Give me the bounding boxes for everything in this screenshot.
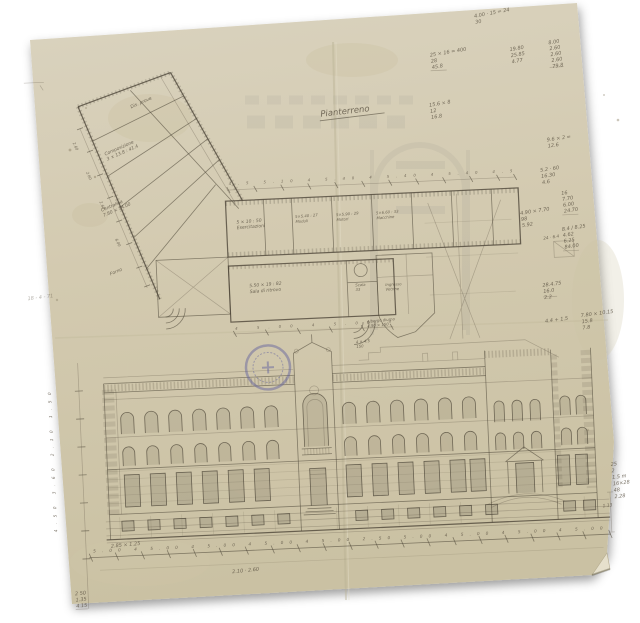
calc-note: 2 501.354.15 [75,590,88,609]
calc-note: 2521.5 m16×28482.28 [610,460,631,500]
svg-text:4.50 3.60 2.10 1.50: 4.50 3.60 2.10 1.50 [47,392,58,532]
drawing-scan: 4.5 5.10 4 5.40 4 5.40 4 5.40 4.5 4 5.00… [0,0,640,623]
scanned-drawing-page: 4.5 5.10 4 5.40 4 5.40 4 5.40 4.5 4 5.00… [0,0,640,623]
calc-note: 1.13 [602,502,613,509]
